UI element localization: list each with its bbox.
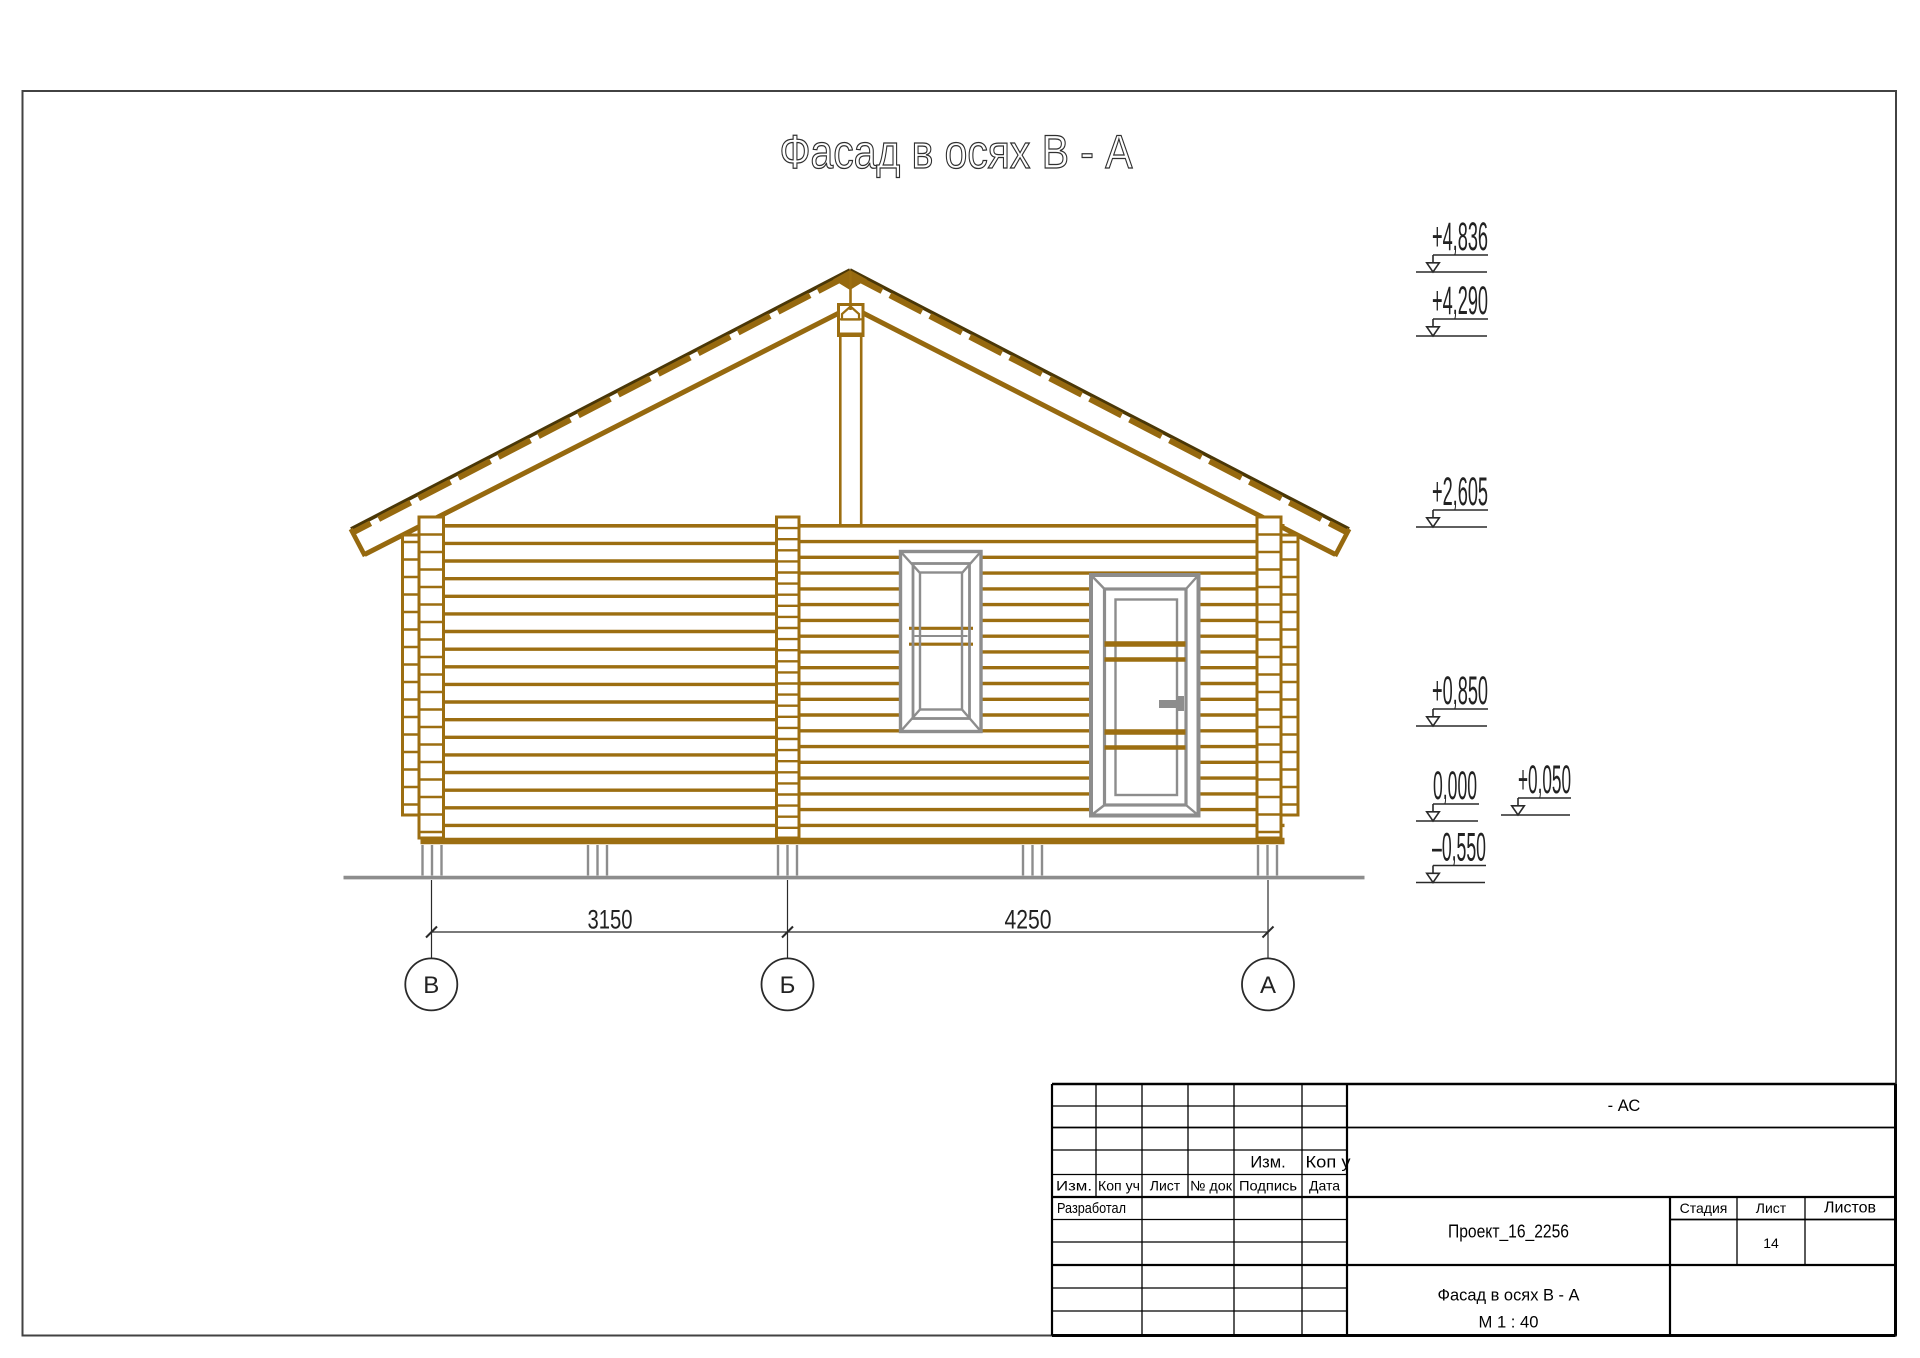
svg-text:А: А bbox=[1260, 972, 1276, 999]
svg-text:+0,050: +0,050 bbox=[1518, 758, 1571, 802]
svg-text:Подпись: Подпись bbox=[1239, 1178, 1297, 1194]
svg-text:- АС: - АС bbox=[1608, 1097, 1641, 1115]
svg-text:Фасад в осях В - А: Фасад в осях В - А bbox=[1438, 1286, 1581, 1305]
svg-text:+4,290: +4,290 bbox=[1432, 279, 1488, 323]
svg-text:14: 14 bbox=[1763, 1235, 1779, 1251]
svg-text:3150: 3150 bbox=[588, 905, 633, 935]
svg-text:Разработал: Разработал bbox=[1057, 1201, 1126, 1217]
svg-text:+0,850: +0,850 bbox=[1432, 669, 1488, 713]
svg-text:+2,605: +2,605 bbox=[1432, 470, 1488, 514]
svg-text:0,000: 0,000 bbox=[1433, 764, 1477, 808]
svg-text:Изм.: Изм. bbox=[1056, 1178, 1092, 1194]
svg-text:4250: 4250 bbox=[1005, 905, 1052, 935]
svg-text:Коп уч: Коп уч bbox=[1098, 1178, 1140, 1194]
svg-text:–0,550: –0,550 bbox=[1432, 826, 1486, 870]
svg-text:Лист: Лист bbox=[1150, 1178, 1181, 1194]
svg-text:Коп у: Коп у bbox=[1306, 1154, 1352, 1172]
svg-text:Фасад в осях В - А: Фасад в осях В - А bbox=[780, 125, 1134, 178]
svg-text:В: В bbox=[423, 972, 439, 999]
svg-text:Дата: Дата bbox=[1309, 1178, 1340, 1194]
svg-text:Листов: Листов bbox=[1824, 1200, 1876, 1217]
svg-text:Б: Б bbox=[780, 972, 796, 999]
svg-text:Лист: Лист bbox=[1756, 1200, 1787, 1216]
svg-text:М 1 : 40: М 1 : 40 bbox=[1479, 1313, 1539, 1332]
svg-text:Проект_16_2256: Проект_16_2256 bbox=[1448, 1221, 1569, 1243]
svg-text:№ док: № док bbox=[1190, 1178, 1233, 1194]
svg-text:+4,836: +4,836 bbox=[1432, 215, 1488, 259]
svg-text:Стадия: Стадия bbox=[1680, 1200, 1728, 1216]
svg-text:Изм.: Изм. bbox=[1250, 1154, 1285, 1172]
